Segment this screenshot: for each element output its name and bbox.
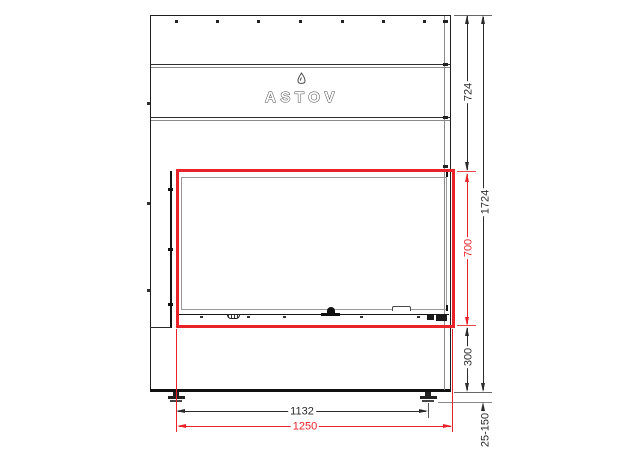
- glass-inner-frame: [181, 177, 447, 310]
- deck-tick: [360, 316, 363, 319]
- dim-arrow: [465, 327, 469, 336]
- foot-base: [422, 400, 434, 402]
- hinge-mark: [168, 248, 174, 251]
- dim-label-total-height: 1724: [479, 188, 492, 216]
- screw-dot: [299, 20, 302, 23]
- deck-tick: [417, 316, 420, 319]
- extension-line-base-bottom: [454, 392, 492, 393]
- dim-arrow: [465, 173, 469, 182]
- igniter-dome: [327, 307, 335, 313]
- burner-deck-line: [179, 314, 449, 316]
- dim-arrow: [176, 409, 185, 413]
- pilot-burner: [227, 314, 240, 319]
- logo-text: ASTOV: [265, 89, 339, 106]
- frame-corner-mark: [446, 305, 448, 311]
- dim-arrow: [177, 424, 186, 428]
- edge-joint-tick: [147, 289, 151, 292]
- hood-divider-lower: [151, 117, 450, 121]
- dim-arrow: [465, 317, 469, 326]
- dim-label-opening-height: 700: [463, 237, 476, 259]
- hinge-mark: [168, 303, 174, 306]
- astov-logo: ASTOV: [252, 71, 352, 109]
- hinge-mark: [168, 188, 174, 191]
- dim-arrow: [465, 383, 469, 392]
- hood-divider-upper: [151, 64, 450, 68]
- gas-valve: [436, 314, 447, 321]
- edge-joint-tick: [443, 63, 448, 66]
- dim-label-top-section-height: 724: [463, 81, 476, 103]
- screw-dot: [175, 20, 178, 23]
- fireplace-technical-drawing: ASTOV 724 700 300: [0, 0, 624, 460]
- dim-label-base-height: 300: [463, 346, 476, 368]
- screw-dot: [382, 20, 385, 23]
- edge-joint-tick: [147, 102, 151, 105]
- dim-arrow: [481, 383, 485, 392]
- screw-dot: [423, 20, 426, 23]
- dim-arrow: [465, 15, 469, 24]
- edge-joint-tick: [147, 202, 151, 205]
- frame-corner-mark: [446, 172, 448, 177]
- logo-flame-icon: [298, 73, 305, 83]
- dim-arrow: [465, 162, 469, 171]
- edge-joint-tick: [443, 20, 448, 23]
- extension-line-top: [454, 15, 492, 16]
- edge-joint-tick: [443, 165, 448, 168]
- screw-dot: [341, 20, 344, 23]
- edge-joint-tick: [443, 116, 448, 119]
- deck-tick: [200, 316, 203, 319]
- dim-arrow: [419, 409, 428, 413]
- extension-line-opening-left: [176, 329, 177, 432]
- dim-label-feet-spacing: 1132: [288, 406, 316, 419]
- gas-valve: [427, 315, 434, 320]
- dim-label-opening-width: 1250: [291, 421, 319, 434]
- dim-label-feet-range: 25-150: [480, 411, 493, 449]
- left-jamb-bottom-line: [150, 327, 171, 328]
- dim-arrow: [481, 15, 485, 24]
- dim-arrow: [443, 424, 452, 428]
- screw-dot: [216, 20, 219, 23]
- deck-tick: [283, 316, 286, 319]
- deck-bracket: [392, 306, 411, 311]
- extension-line-opening-right: [452, 329, 453, 432]
- deck-tick: [247, 316, 250, 319]
- screw-dot: [257, 20, 260, 23]
